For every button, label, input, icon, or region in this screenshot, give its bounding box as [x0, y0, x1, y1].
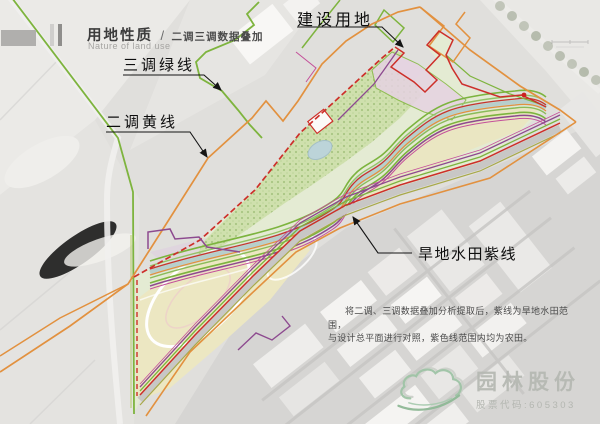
label-survey3-green-line: 三调绿线: [123, 54, 195, 75]
stock-code: 股票代码:605303: [476, 397, 580, 411]
header-decoration-bar-light: [50, 24, 54, 46]
label-paddy-purple-line: 旱地水田紫线: [418, 243, 517, 264]
logo-text-block: 园林股份 股票代码:605303: [476, 371, 580, 411]
company-name: 园林股份: [476, 371, 580, 395]
analysis-note: 将二调、三调数据叠加分析提取后，紫线为旱地水田范围， 与设计总平面进行对照，紫色…: [328, 305, 578, 346]
map-canvas: [0, 0, 600, 424]
company-logo: 园林股份 股票代码:605303: [394, 364, 580, 418]
page-subtitle: 二调三调数据叠加: [172, 31, 264, 43]
analysis-note-line1: 将二调、三调数据叠加分析提取后，紫线为旱地水田范围，: [328, 305, 578, 332]
analysis-note-line2: 与设计总平面进行对照，紫色线范围内均为农田。: [328, 332, 578, 346]
header-decoration-bar-dark: [58, 24, 62, 46]
land-use-slide: 用地性质 / 二调三调数据叠加 Nature of land use 三调绿线 …: [0, 0, 600, 424]
header-decoration-block: [1, 30, 36, 46]
red-dot-marker: [522, 93, 527, 98]
label-survey2-yellow-line: 二调黄线: [106, 111, 178, 132]
page-subtitle-en: Nature of land use: [88, 41, 171, 51]
cloud-logo-icon: [394, 364, 468, 418]
label-construction-land: 建设用地: [297, 6, 373, 30]
